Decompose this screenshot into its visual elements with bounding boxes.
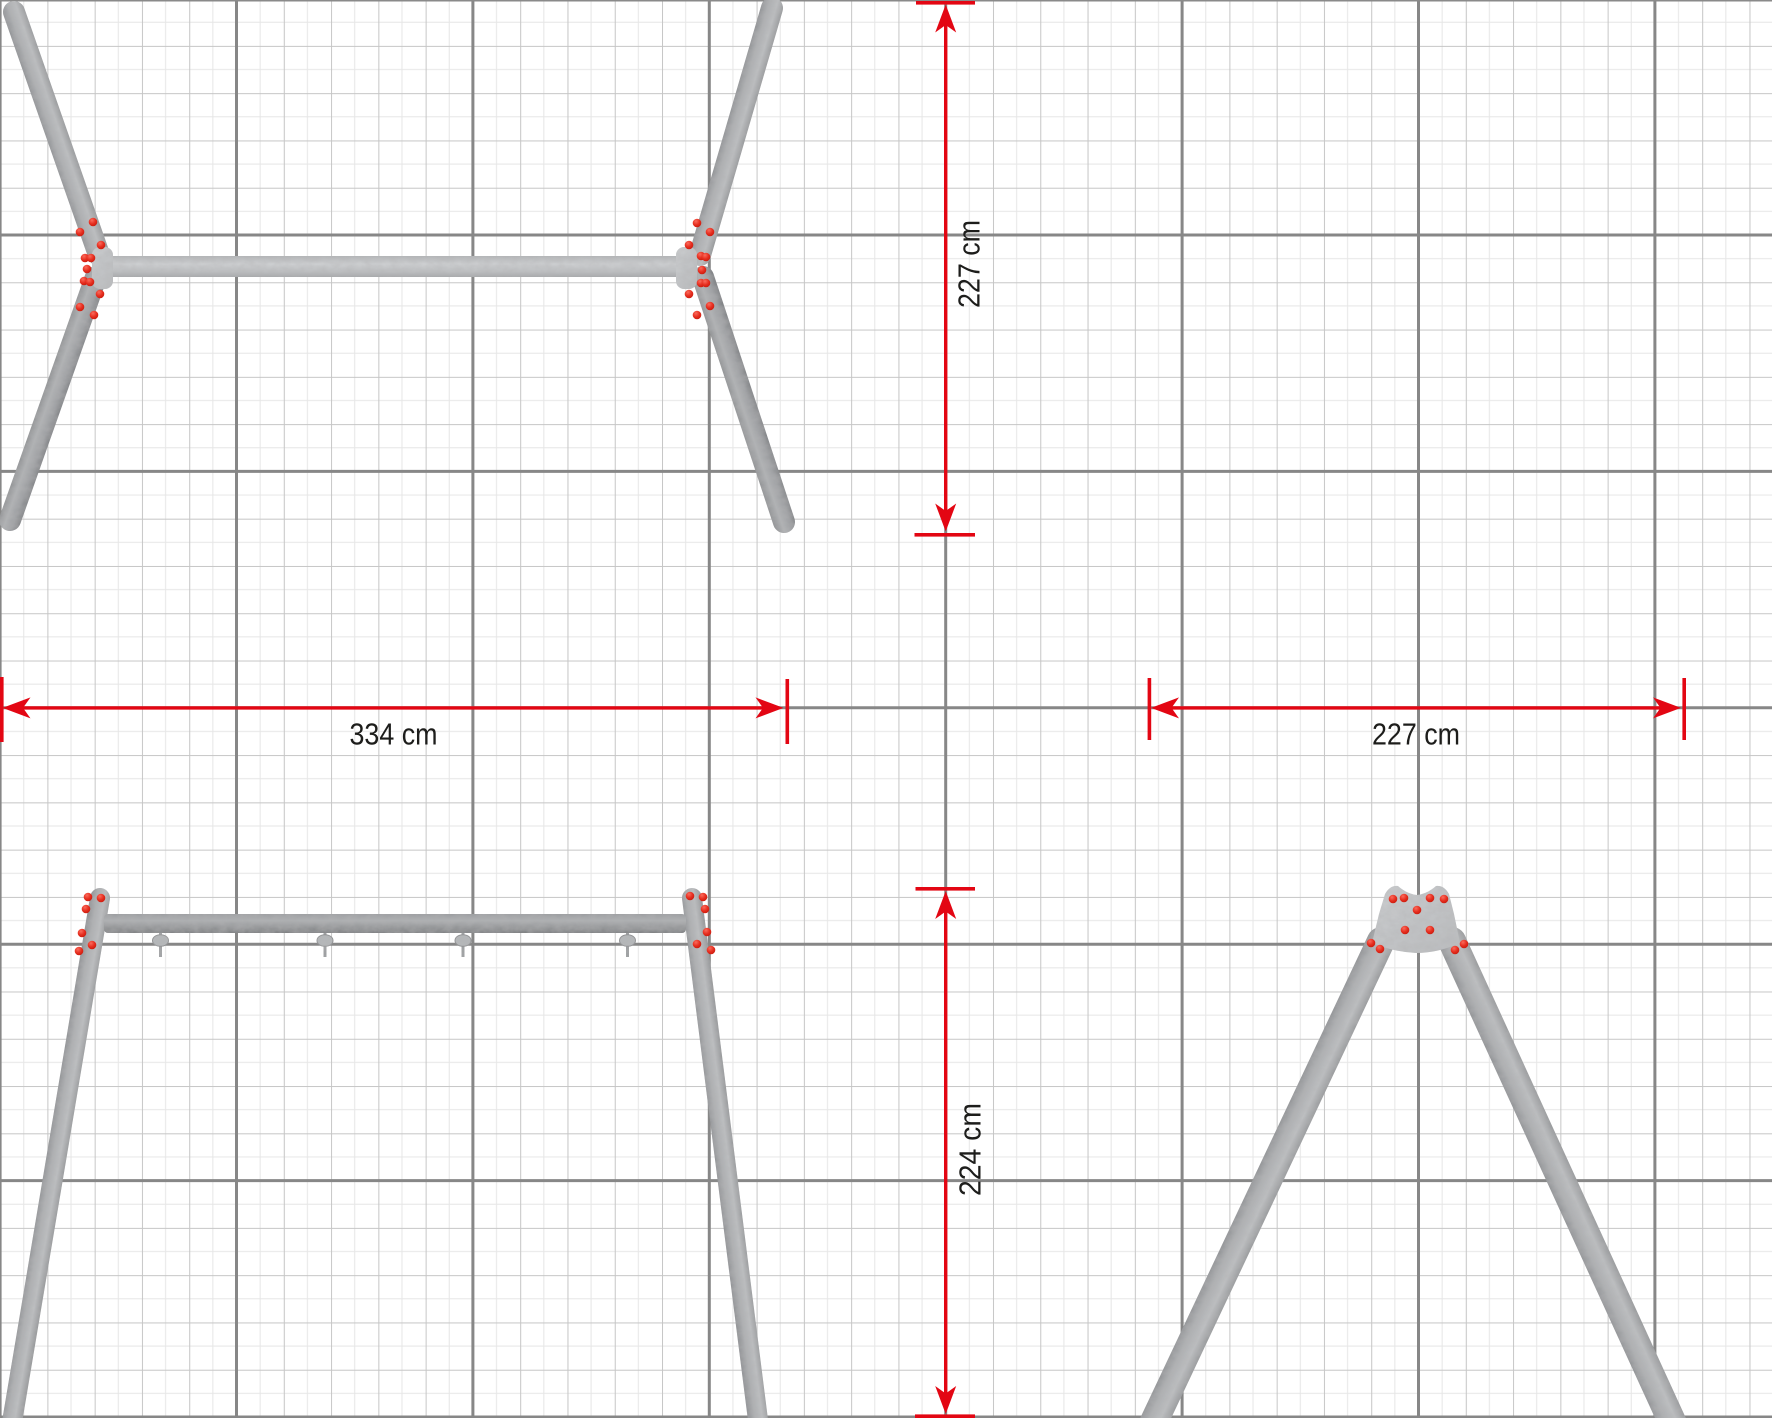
svg-text:334 cm: 334 cm [350, 717, 438, 752]
svg-text:227 cm: 227 cm [952, 220, 987, 308]
svg-text:224 cm: 224 cm [953, 1103, 988, 1196]
svg-text:227 cm: 227 cm [1372, 717, 1460, 752]
